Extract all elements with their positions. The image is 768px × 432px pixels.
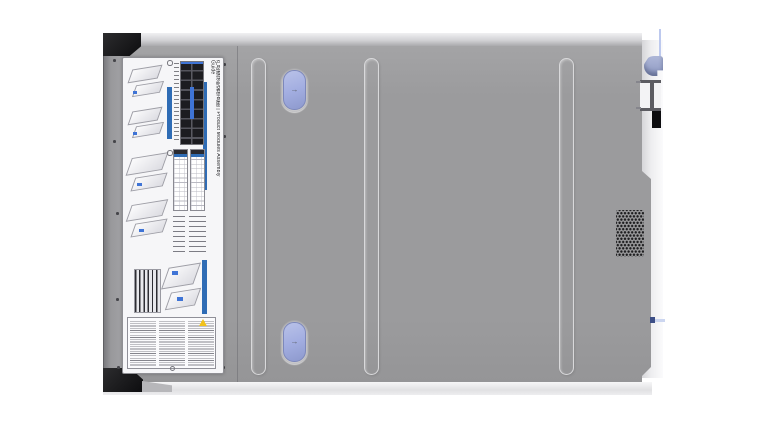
drive-bay-diagram — [180, 61, 204, 145]
warning-icon — [199, 319, 207, 326]
server-top-view: → → 产品模块组装信息图 | Product Modules Assembly… — [0, 0, 768, 432]
parts-table-2 — [190, 149, 205, 211]
cover-rib-left — [251, 58, 266, 375]
circled-number — [167, 150, 173, 156]
bracket-tick-bottom — [636, 107, 641, 109]
fan-shape — [130, 219, 167, 238]
fine-print-column — [159, 321, 185, 367]
cover-removal-illustration — [163, 257, 200, 314]
rivet — [117, 366, 120, 369]
rivet — [113, 59, 116, 62]
parts-table-1 — [173, 149, 188, 211]
drive-tray-illustration-1 — [127, 61, 164, 101]
cover-left-flange — [103, 46, 123, 382]
chassis-bottom-side — [103, 382, 652, 395]
label-section-bar — [167, 87, 172, 139]
arrow-right-icon: → — [291, 86, 299, 94]
cover-latch-button-bottom: → — [281, 320, 308, 364]
tray-shape — [127, 65, 162, 84]
fine-print-block — [127, 317, 216, 369]
tray-shape — [132, 122, 164, 138]
side-clip-line — [655, 319, 665, 322]
fan-module-illustration — [127, 197, 169, 239]
latch-button-face: → — [283, 70, 306, 110]
cover-shape — [165, 288, 201, 311]
rivet — [113, 140, 116, 143]
callout-list — [174, 63, 179, 143]
label-title: 产品模块组装信息图 | Product Modules Assembly Gui… — [208, 60, 220, 178]
service-label: 产品模块组装信息图 | Product Modules Assembly Gui… — [122, 57, 224, 374]
label-bottom-mark — [170, 366, 175, 371]
cover-rib-middle — [364, 58, 379, 375]
bracket-tick-top — [636, 81, 641, 83]
drive-bay-highlight — [190, 87, 194, 119]
arrow-right-icon: → — [291, 338, 299, 346]
rear-cable-line — [659, 29, 661, 59]
drive-tray-illustration-2 — [127, 104, 164, 141]
cover-shape — [161, 263, 201, 290]
rivet — [116, 298, 119, 301]
rear-black-block — [652, 111, 661, 128]
legend-lines — [173, 216, 206, 253]
tray-shape — [132, 81, 164, 97]
fine-print-column — [130, 321, 156, 367]
accent-chip — [133, 132, 137, 135]
cover-top-edge — [103, 33, 642, 46]
accent-chip — [177, 297, 183, 301]
label-section-bar — [202, 260, 207, 314]
cover-panel-seam — [237, 46, 238, 382]
rivet — [116, 212, 119, 215]
accent-chip — [172, 271, 178, 275]
front-bay-illustration — [134, 269, 161, 313]
drive-bay-header — [181, 62, 203, 64]
chassis-illustration-1 — [127, 149, 169, 194]
accent-chip — [139, 229, 144, 232]
cover-rib-right — [559, 58, 574, 375]
fine-print-column — [188, 321, 214, 367]
latch-button-face: → — [283, 322, 306, 362]
accent-chip — [137, 183, 142, 186]
chassis-shape — [130, 173, 167, 192]
rear-bracket-bar — [650, 83, 654, 108]
circled-number — [167, 60, 173, 66]
cover-latch-button-top: → — [281, 68, 308, 112]
vent-grille — [616, 210, 644, 257]
legend-gap — [185, 216, 189, 253]
accent-chip — [133, 91, 137, 94]
